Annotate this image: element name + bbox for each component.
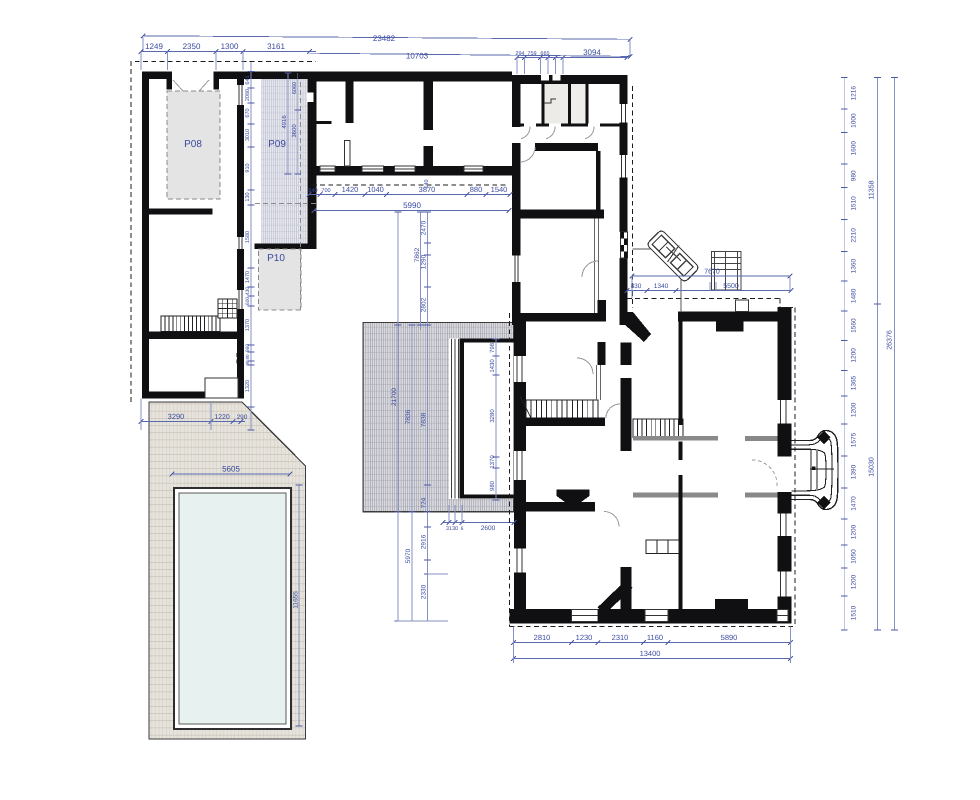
svg-text:880: 880 (470, 185, 483, 194)
svg-text:7836: 7836 (405, 409, 412, 424)
svg-text:1340: 1340 (654, 283, 669, 290)
svg-text:1540: 1540 (491, 185, 508, 194)
svg-text:5970: 5970 (405, 548, 412, 563)
svg-text:2210: 2210 (851, 228, 858, 243)
svg-text:11655: 11655 (293, 591, 300, 609)
svg-text:2080: 2080 (245, 89, 251, 101)
svg-text:1000: 1000 (851, 113, 858, 128)
svg-text:2350: 2350 (183, 42, 201, 51)
svg-text:860: 860 (245, 344, 251, 353)
svg-text:1249: 1249 (145, 42, 163, 51)
svg-text:540: 540 (308, 188, 317, 194)
svg-text:3280: 3280 (489, 409, 496, 423)
svg-text:4916: 4916 (281, 115, 288, 129)
svg-text:430: 430 (245, 287, 251, 296)
svg-text:1390: 1390 (851, 464, 858, 479)
svg-text:724: 724 (421, 497, 428, 508)
svg-text:980: 980 (489, 480, 496, 491)
svg-text:980: 980 (851, 170, 858, 181)
svg-text:P09: P09 (268, 139, 286, 150)
svg-text:1370: 1370 (245, 319, 251, 331)
svg-text:1470: 1470 (851, 496, 858, 511)
svg-text:10703: 10703 (406, 52, 429, 61)
svg-text:1510: 1510 (851, 605, 858, 620)
svg-text:15030: 15030 (869, 457, 876, 477)
svg-text:2810: 2810 (534, 633, 551, 642)
svg-text:1050: 1050 (851, 549, 858, 564)
svg-text:1040: 1040 (367, 185, 384, 194)
svg-text:1200: 1200 (851, 348, 858, 363)
svg-text:3161: 3161 (267, 42, 285, 51)
svg-text:130: 130 (245, 192, 251, 201)
svg-text:1560: 1560 (851, 318, 858, 333)
svg-text:80: 80 (245, 354, 250, 360)
svg-text:1600: 1600 (851, 141, 858, 156)
svg-text:2330: 2330 (421, 584, 428, 599)
svg-text:5605: 5605 (222, 465, 240, 474)
svg-text:1200: 1200 (851, 574, 858, 589)
svg-text:798: 798 (489, 342, 496, 353)
svg-text:294: 294 (515, 51, 524, 57)
svg-text:1230: 1230 (576, 633, 593, 642)
svg-text:600: 600 (245, 297, 251, 306)
svg-text:13400: 13400 (640, 649, 661, 658)
svg-text:3094: 3094 (583, 48, 601, 57)
svg-text:5990: 5990 (403, 201, 421, 210)
svg-text:P08: P08 (184, 139, 202, 150)
svg-text:5500: 5500 (723, 283, 739, 290)
svg-text:1365: 1365 (851, 375, 858, 390)
svg-text:3130: 3130 (446, 526, 458, 532)
svg-text:26376: 26376 (887, 330, 894, 350)
svg-text:1160: 1160 (647, 633, 663, 642)
svg-text:1510: 1510 (851, 196, 858, 211)
svg-text:6: 6 (461, 526, 464, 532)
svg-text:7670: 7670 (704, 269, 720, 276)
svg-text:3010: 3010 (245, 129, 251, 141)
svg-text:1300: 1300 (221, 42, 239, 51)
svg-text:1575: 1575 (851, 432, 858, 447)
svg-text:1216: 1216 (851, 86, 858, 101)
svg-text:1370: 1370 (489, 455, 496, 469)
svg-text:140: 140 (424, 179, 430, 188)
svg-text:1290: 1290 (421, 254, 428, 269)
svg-text:290: 290 (237, 414, 248, 421)
svg-text:1430: 1430 (489, 359, 496, 373)
svg-text:700: 700 (321, 188, 330, 194)
svg-text:7838: 7838 (421, 412, 428, 427)
svg-text:1420: 1420 (342, 185, 359, 194)
svg-text:2600: 2600 (481, 525, 496, 532)
svg-text:21700: 21700 (391, 388, 398, 406)
svg-text:1580: 1580 (245, 231, 251, 243)
svg-text:2802: 2802 (421, 297, 428, 312)
svg-text:11358: 11358 (869, 180, 876, 199)
svg-text:670: 670 (245, 108, 251, 117)
svg-text:910: 910 (245, 163, 251, 172)
svg-text:2470: 2470 (421, 220, 428, 235)
svg-text:P10: P10 (267, 253, 285, 264)
svg-text:641: 641 (245, 75, 251, 84)
svg-text:1480: 1480 (851, 288, 858, 303)
svg-text:6060: 6060 (292, 82, 298, 94)
svg-text:3600: 3600 (291, 124, 298, 138)
svg-text:1200: 1200 (851, 524, 858, 539)
svg-text:1200: 1200 (851, 402, 858, 417)
svg-text:1220: 1220 (214, 414, 230, 421)
svg-text:1320: 1320 (245, 380, 251, 392)
svg-text:90: 90 (245, 360, 250, 366)
svg-text:3290: 3290 (168, 412, 185, 421)
svg-text:5890: 5890 (721, 633, 738, 642)
svg-text:2916: 2916 (421, 534, 428, 549)
svg-text:665: 665 (540, 51, 549, 57)
svg-text:759: 759 (527, 51, 536, 57)
svg-text:1470: 1470 (245, 271, 251, 283)
svg-text:2310: 2310 (612, 633, 629, 642)
svg-text:1360: 1360 (851, 259, 858, 274)
svg-text:23482: 23482 (373, 34, 396, 43)
